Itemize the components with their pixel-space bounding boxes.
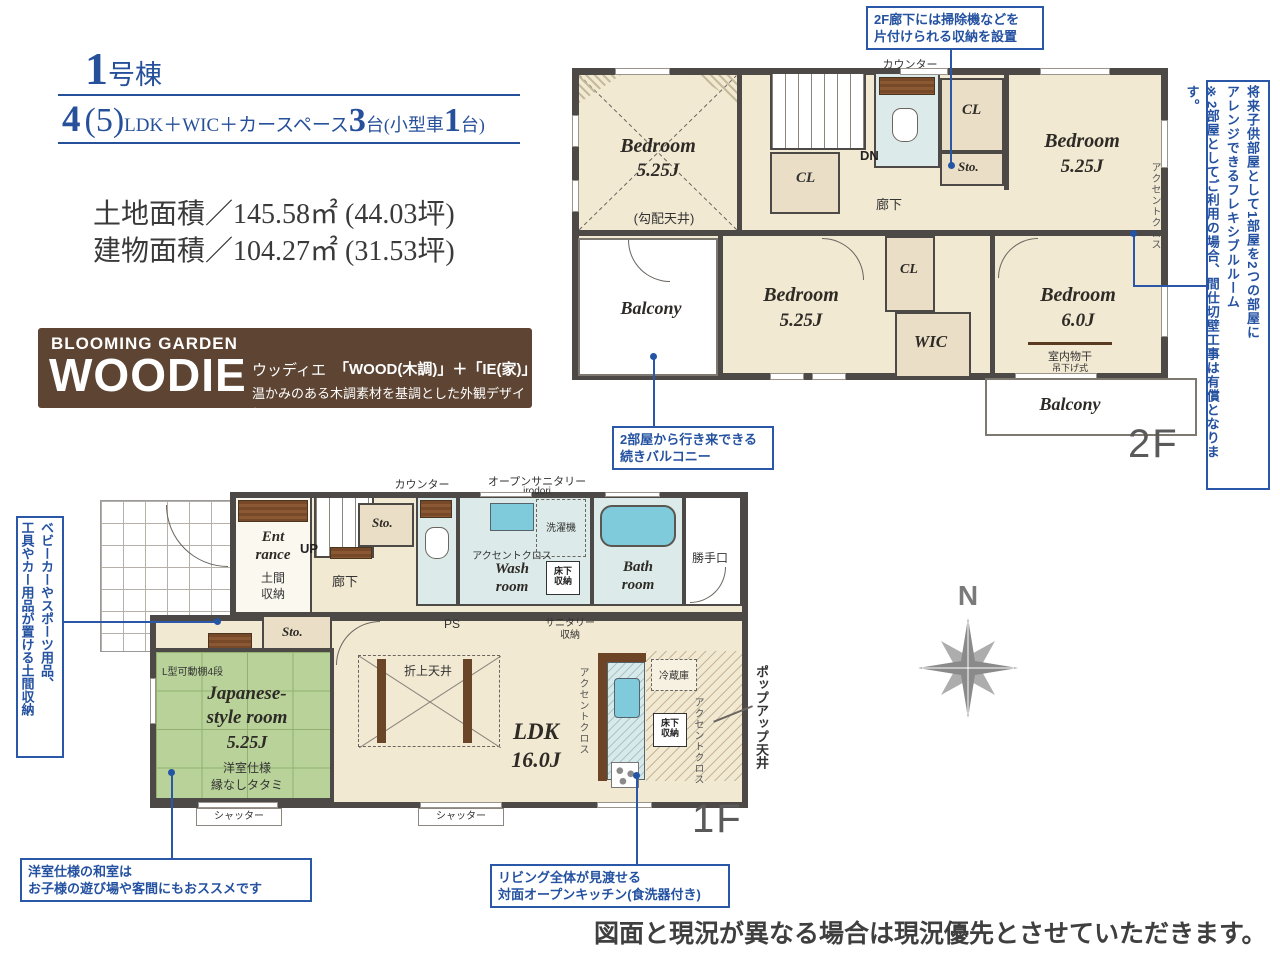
header-rule-top [58, 94, 520, 96]
f1-ps-label: PS [444, 617, 460, 631]
f2-window-a-left2 [572, 180, 579, 212]
brand-banner: BLOOMING GARDEN WOODIE ウッディエ 「WOOD(木調)」＋… [38, 328, 532, 408]
plan-num-5: (5) [85, 102, 125, 139]
callout-kitchen-line2: 対面オープンキッチン(食洗器付き) [498, 886, 722, 903]
callout-flexible-room: 将来子供部屋として1部屋を2つの部屋に アレンジできるフレキシブルルーム ※2部… [1206, 80, 1270, 490]
f2-dn-label: DN [860, 148, 879, 163]
dot-flexible [1130, 230, 1137, 237]
f1-kitchen-counter-side [598, 653, 607, 781]
callout-hallway-storage: 2F廊下には掃除機などを 片付けられる収納を設置 [866, 6, 1044, 50]
plan-rooms: LDK＋WIC＋カースペース [124, 115, 349, 136]
dot-washitsu [168, 769, 175, 776]
f2-floor-label: 2F [1128, 422, 1179, 467]
f1-shutter-left: シャッター [196, 808, 282, 826]
floor-plan-1f: Ent rance 土間 収納 UP 廊下 Sto. カウンター 洗濯機 アクセ… [100, 475, 780, 855]
f2-closet-left-label: CL [796, 170, 815, 187]
callout-kitchen: リビング全体が見渡せる 対面オープンキッチン(食洗器付き) [490, 864, 730, 908]
f1-window-kitchen-bottom [597, 802, 652, 808]
callout-washitsu: 洋室仕様の和室は お子様の遊び場や客間にもおススメです [20, 858, 312, 902]
callout-kitchen-line1: リビング全体が見渡せる [498, 869, 722, 886]
compass-rose-icon [918, 618, 1018, 718]
flyer-page: 1号棟 4 (5)LDK＋WIC＋カースペース3台(小型車1台) 土地面積／14… [0, 0, 1280, 960]
f1-raised-ceiling: 折上天井 [358, 655, 500, 747]
f1-popup-ceiling-label: ポップアップ天井 [752, 665, 771, 810]
brand-formula: 「WOOD(木調)」＋「IE(家)」 [334, 358, 532, 379]
f1-sanitary-storage-label2: 収納 [560, 626, 580, 641]
f1-washer-label: 洗濯機 [546, 519, 576, 534]
f2-bedroom-b-name: Bedroom [1044, 130, 1120, 153]
dot-balcony [650, 353, 657, 360]
f2-bedroom-a-note: (勾配天井) [634, 208, 695, 227]
connector-washitsu [171, 774, 173, 858]
f1-underfloor-label1: 床下 [547, 566, 579, 576]
plan-small-car-open: (小型車 [384, 115, 444, 135]
f2-window-a-top [615, 68, 670, 75]
brand-reading: ウッディエ [252, 359, 326, 380]
f2-storage-label: Sto. [958, 159, 979, 175]
header-rule-bottom [58, 142, 520, 144]
f1-shutter-left-label: シャッター [197, 809, 281, 825]
f2-bedroom-c-name: Bedroom [763, 284, 839, 307]
plan-small-car-close: 台) [461, 115, 485, 135]
f1-window-wash-top [480, 492, 532, 497]
f1-entrance-label1: Ent [262, 529, 285, 546]
f2-bedroom-d-name: Bedroom [1040, 284, 1116, 307]
callout-balcony: 2部屋から行き来できる 続きバルコニー [612, 426, 774, 470]
f1-hallway-label: 廊下 [332, 571, 358, 590]
f2-window-c-bottom2 [812, 373, 846, 380]
f1-stair-step [330, 547, 372, 559]
f1-kitchen-sink [614, 678, 640, 718]
floor-plan-2f: Bedroom 5.25J (勾配天井) CL カウンター DN 廊下 CL S… [570, 60, 1210, 475]
compass: N [912, 580, 1024, 740]
callout-washitsu-line2: お子様の遊び場や客間にもおススメです [28, 880, 304, 897]
connector-doma [64, 621, 218, 623]
f2-window-b-right [1161, 120, 1168, 168]
f2-bedroom-b-size: 5.25J [1061, 156, 1104, 178]
callout-hallway-storage-line1: 2F廊下には掃除機などを [874, 11, 1036, 28]
f1-counter-label: カウンター [395, 476, 450, 492]
f1-underfloor2-label1: 床下 [654, 718, 686, 728]
f1-window-jroom-left [150, 678, 156, 724]
f2-balcony-left-label: Balcony [621, 298, 682, 319]
f1-wash-label1: Wash [495, 561, 529, 578]
connector-kitchen [636, 778, 638, 864]
f2-wall-a [737, 70, 742, 235]
f2-bedroom-a-name: Bedroom [620, 135, 696, 158]
f1-accent-ldk-label: アクセントクロス [575, 667, 590, 767]
callout-doma-line2: 工具やカー用品が置ける土間収納 [17, 521, 37, 753]
f1-jroom-label1: Japanese- [207, 683, 286, 705]
f2-wic-label: WIC [914, 332, 947, 352]
f1-tatami-label1: 洋室仕様 [223, 759, 271, 776]
callout-doma-line1: ベビーカーやスポーツ用品、 [37, 521, 57, 753]
plan-num-1: 1 [444, 102, 461, 139]
f2-bedroom-c-size: 5.25J [780, 310, 823, 332]
brand-logo: WOODIE [49, 352, 247, 398]
f1-up-label: UP [300, 541, 318, 556]
f1-ldk-label: LDK [513, 719, 559, 745]
f1-sink [490, 503, 534, 531]
f2-window-top-mid [900, 68, 948, 75]
f1-underfloor-storage-2: 床下 収納 [653, 713, 687, 747]
plan-line: 4 (5)LDK＋WIC＋カースペース3台(小型車1台) [62, 98, 532, 141]
f1-ldk-size: 16.0J [511, 747, 561, 773]
f1-floor-label: 1F [692, 797, 743, 842]
compass-north-label: N [912, 580, 1024, 612]
f2-wall-b [1004, 70, 1009, 190]
f1-accent-wash-label: アクセントクロス [472, 547, 552, 562]
f2-laundry-pole [1028, 342, 1112, 345]
connector-hallway-storage [950, 48, 952, 166]
plan-num-3: 3 [349, 102, 366, 139]
plan-num-4: 4 [62, 99, 81, 140]
unit-suffix: 号棟 [108, 60, 162, 90]
disclaimer: 図面と現況が異なる場合は現況優先とさせていただきます。 [594, 914, 1267, 950]
callout-balcony-line2: 続きバルコニー [620, 448, 766, 465]
f1-entrance-step [238, 500, 308, 522]
f1-window-bath-top [605, 492, 660, 497]
f1-shutter-center-label: シャッター [419, 809, 503, 825]
f2-accent-cloth-label: アクセントクロス [1147, 162, 1162, 262]
f2-window-a-left1 [572, 115, 579, 147]
f1-ceiling-beam-right [463, 659, 472, 743]
f1-fridge-label: 冷蔵庫 [659, 667, 689, 682]
f1-tatami-label2: 縁なしタタミ [211, 776, 283, 793]
f1-underfloor-label2: 収納 [547, 576, 579, 586]
f2-hallway-label: 廊下 [876, 194, 902, 213]
f1-raised-ceiling-label: 折上天井 [401, 662, 455, 679]
unit-number: 1 [85, 43, 108, 94]
f2-closet-mid-label: CL [900, 262, 918, 278]
f2-window-b-top [1040, 68, 1110, 75]
f2-closet-right-label: CL [962, 102, 981, 119]
f2-balcony-right-label: Balcony [1040, 394, 1101, 415]
f1-underfloor2-label2: 収納 [654, 728, 686, 738]
building-area: 建物面積／104.27㎡ (31.53坪) [93, 229, 455, 269]
f1-counter [420, 500, 452, 518]
f1-ceiling-beam-left [377, 659, 386, 743]
f1-bath-label1: Bath [623, 559, 653, 576]
f2-bedroom-d-size: 6.0J [1061, 310, 1094, 332]
f1-shelf-label: L型可動棚4段 [162, 663, 223, 678]
f1-accent-kitchen-label: アクセントクロス [690, 697, 705, 812]
f2-stairs [770, 72, 866, 150]
land-area: 土地面積／145.58㎡ (44.03坪) [93, 192, 455, 232]
f2-window-d-right [1161, 285, 1168, 337]
f1-side-door-label: 勝手口 [692, 549, 728, 566]
f2-bedroom-a-size: 5.25J [637, 160, 680, 182]
f1-jroom-label2: style room [207, 707, 288, 729]
f2-wall-d [990, 236, 995, 378]
dot-hallway-storage [948, 162, 955, 169]
unit-title: 1号棟 [85, 42, 162, 95]
f2-wall-mid [576, 230, 1166, 236]
f1-wash-label2: room [496, 579, 529, 596]
f2-wall-c [718, 236, 723, 378]
f1-entrance-label2: rance [256, 547, 291, 564]
dot-doma [214, 618, 221, 625]
callout-hallway-storage-line2: 片付けられる収納を設置 [874, 28, 1036, 45]
connector-balcony [653, 358, 655, 426]
callout-flexible-line3: ※2部屋としてご利用の場合、間仕切壁工事は有償となります。 [1181, 85, 1221, 485]
f1-jroom-size: 5.25J [227, 732, 268, 753]
f1-bathtub [600, 505, 676, 547]
f1-doma-label1: 土間 [261, 569, 285, 586]
callout-balcony-line1: 2部屋から行き来できる [620, 431, 766, 448]
f1-storage-top-label: Sto. [372, 515, 393, 531]
f1-storage-mid-label: Sto. [282, 624, 303, 640]
callout-doma-storage: ベビーカーやスポーツ用品、 工具やカー用品が置ける土間収納 [16, 516, 64, 758]
dot-kitchen [633, 772, 640, 779]
callout-flexible-line2: アレンジできるフレキシブルルーム [1222, 85, 1242, 485]
callout-washitsu-line1: 洋室仕様の和室は [28, 863, 304, 880]
f1-bath-label2: room [622, 577, 655, 594]
f1-toilet-fixture [425, 527, 449, 559]
callout-flexible-line1: 将来子供部屋として1部屋を2つの部屋に [1242, 85, 1262, 485]
f2-toilet-fixture [892, 108, 918, 142]
plan-unit: 台 [366, 115, 384, 135]
connector-flexible-v [1133, 234, 1135, 286]
brand-tagline: 温かみのある木調素材を基調とした外観デザイン [252, 383, 532, 421]
f2-window-c-bottom1 [770, 373, 804, 380]
f1-doma-label2: 収納 [261, 585, 285, 602]
f2-counter [879, 77, 935, 95]
f1-shutter-center: シャッター [418, 808, 504, 826]
f1-underfloor-storage: 床下 収納 [546, 561, 580, 595]
